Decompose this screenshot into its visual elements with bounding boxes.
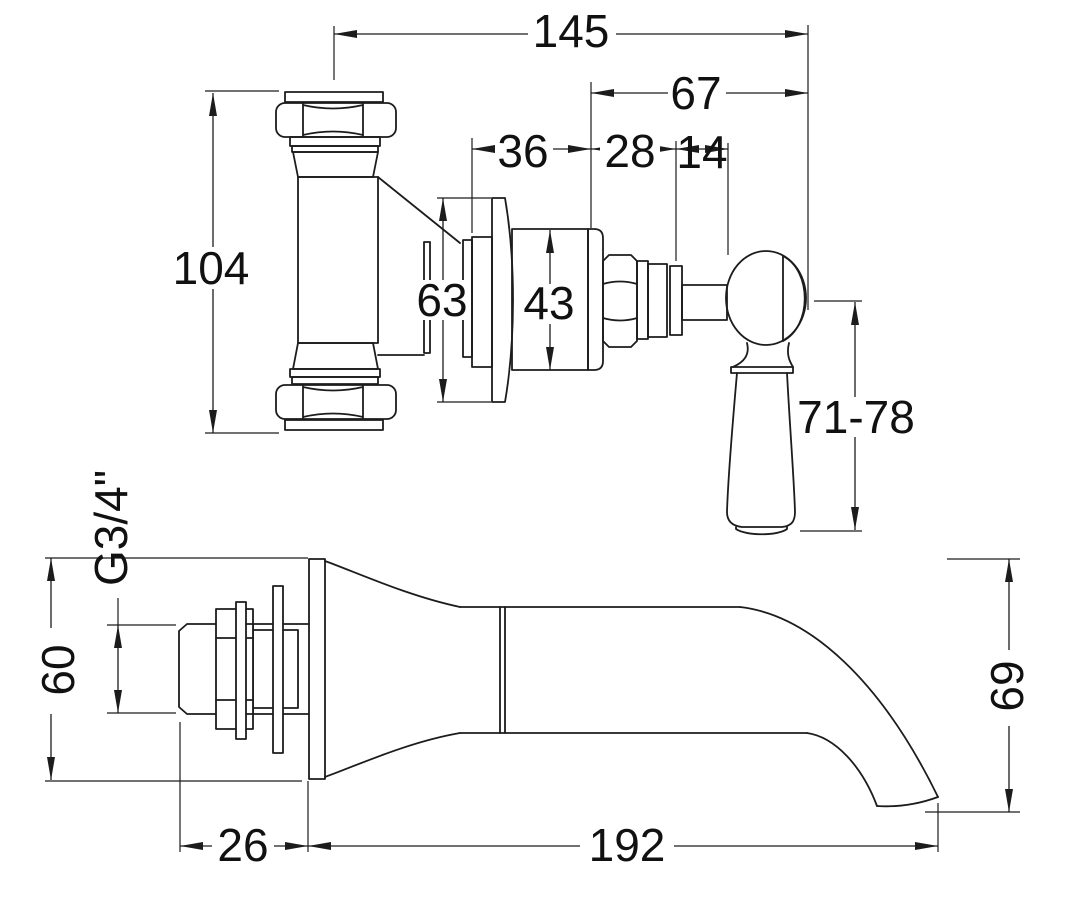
olive-ring-bottom [290,369,380,377]
technical-drawing-page: 145 67 36 28 14 104 63 43 71-78 [0,0,1080,918]
dim-bonnet-length-label: 28 [604,125,655,177]
spout-side-view: 60 G3/4" 26 192 69 [32,470,1033,871]
bonnet-hex-facets [603,282,637,321]
spout-outer-curve [740,607,938,797]
dim-tail-length-label: 26 [217,819,268,871]
valve-elevation-view: 145 67 36 28 14 104 63 43 71-78 [170,5,917,534]
collar-top [293,152,378,177]
dim-handle-length-label: 71-78 [797,391,915,443]
dim-flange-diameter-label: 63 [416,274,467,326]
dim-cartridge-diameter-label: 43 [523,277,574,329]
dim-spout-drop-label: 69 [981,660,1033,711]
spout-dimensions: 60 G3/4" 26 192 69 [32,470,1033,871]
branch-top-edge [378,177,460,243]
collar-bottom [293,343,378,369]
spout-trumpet-top [325,561,460,607]
spout-wall-plate [309,559,325,779]
valve-dimensions: 145 67 36 28 14 104 63 43 71-78 [170,5,917,531]
washer-ring-2 [273,586,283,753]
lever-collar [731,367,793,373]
spout-mouth [877,797,938,806]
spout-trumpet-bottom [325,733,460,777]
handle-stem [682,285,727,320]
compression-nut-top-facets [303,104,363,136]
lever-end-cap [736,527,787,534]
compression-nut-bottom-facets [303,386,363,418]
ball-face-bulge [783,256,805,341]
gland-block [648,264,667,337]
washer-ring-1 [236,602,246,739]
lever-neck [733,343,793,367]
spout-inner-curve [807,733,877,806]
dim-thread-size-label: G3/4" [85,470,137,586]
spout-assembly [179,559,938,806]
bonnet-washer [637,261,648,339]
stem-ring [670,266,682,335]
dim-spout-projection-label: 192 [589,819,666,871]
dim-trim-depth-label: 36 [497,125,548,177]
dim-handle-projection-label: 67 [670,67,721,119]
pipe-bottom-cap [285,420,383,430]
dim-stem-length-label: 14 [676,126,727,178]
bonnet-hex-nut [603,255,637,347]
dim-body-height-label: 104 [173,242,250,294]
olive-ring-top [290,137,380,146]
dim-overall-width-label: 145 [533,5,610,57]
lever-handle [727,373,795,527]
cartridge-end-cap [588,229,603,370]
spout-joint-line [500,607,505,733]
trim-sleeve-back [472,237,492,367]
backnut [216,609,253,729]
valve-body [298,177,378,343]
olive-ring-bottom-2 [292,377,378,384]
drawing-canvas: 145 67 36 28 14 104 63 43 71-78 [0,0,1080,918]
wall-flange [492,198,513,402]
spout-barrel [460,607,807,733]
pipe-top-cap [285,92,383,102]
dim-inlet-height-label: 60 [32,644,84,695]
